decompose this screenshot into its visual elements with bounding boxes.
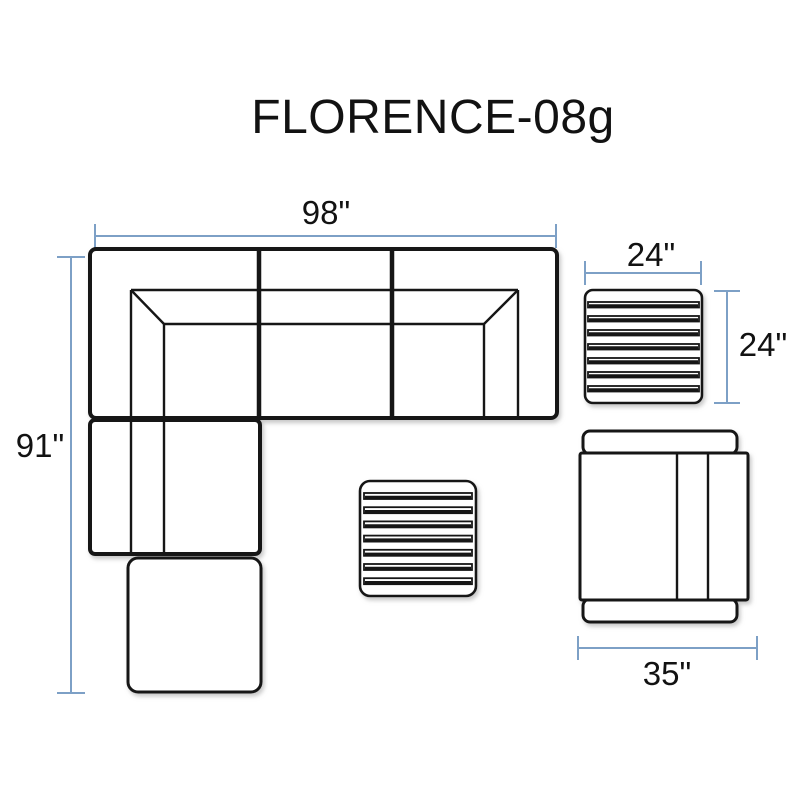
- dimension-label-club-chair-width: 35": [643, 655, 691, 693]
- coffee-table: [360, 481, 476, 596]
- sofa-depth-dimension-line: [57, 257, 85, 693]
- ottoman-outline: [128, 558, 261, 692]
- product-dimension-diagram: FLORENCE-08g: [0, 0, 800, 800]
- ottoman: [128, 558, 261, 692]
- coffee-table-slats: [364, 493, 472, 584]
- sofa-top-row: [90, 249, 557, 418]
- dimension-label-side-table-depth: 24": [739, 326, 787, 364]
- dimension-label-sectional-width: 98": [302, 194, 350, 232]
- dimension-label-side-table-width: 24": [627, 236, 675, 274]
- side-table-depth-dimension-line: [714, 291, 740, 403]
- sectional-sofa: [90, 249, 557, 554]
- club-chair-bottom-arm: [583, 599, 737, 622]
- club-chair-top-arm: [583, 431, 737, 454]
- club-chair-body: [580, 453, 748, 600]
- side-table-slats: [588, 302, 699, 392]
- side-table: [585, 290, 702, 403]
- dimension-label-sectional-depth: 91": [16, 427, 64, 465]
- club-chair: [580, 431, 748, 622]
- sofa-chaise-section: [90, 420, 260, 554]
